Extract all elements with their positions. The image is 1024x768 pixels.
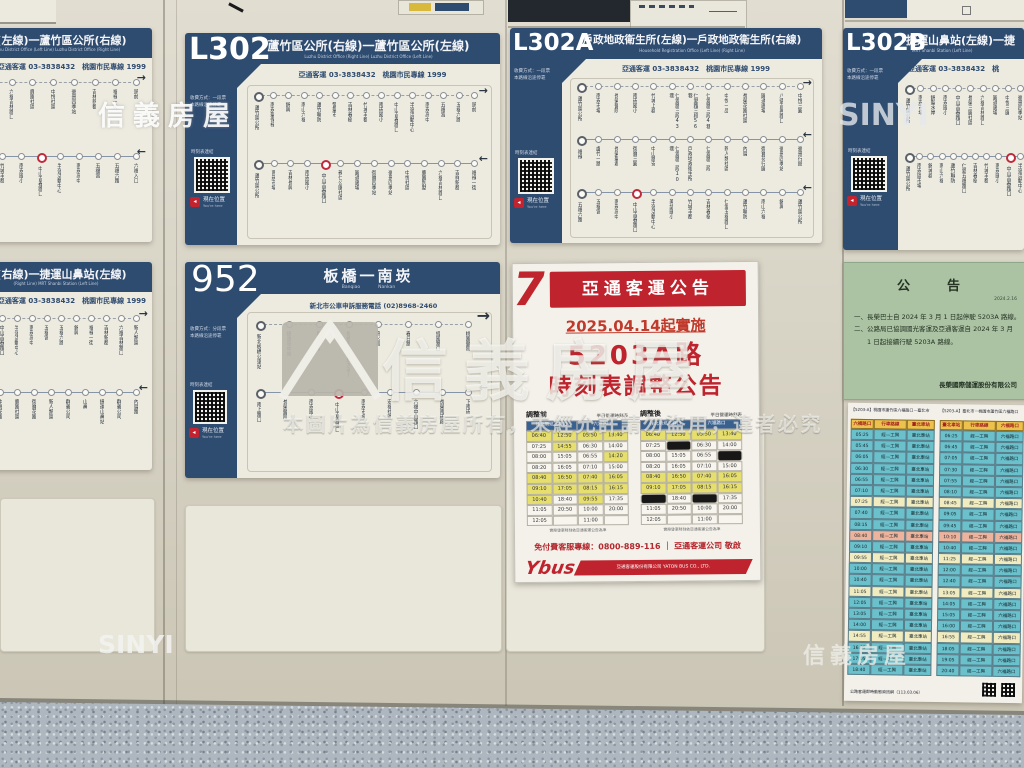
stop-dot bbox=[316, 321, 323, 328]
departure-time-cell: 06:45 bbox=[939, 441, 962, 453]
stop-dot bbox=[375, 321, 382, 328]
stop-label: 頭前 bbox=[132, 89, 138, 99]
bus-stop: 吉林新都 bbox=[92, 79, 99, 109]
destination-cell: 臺北車站 bbox=[906, 497, 934, 509]
stop-label: 五福六路 bbox=[113, 163, 119, 183]
sheet-table-outbound: 六福路口行車路線臺北車站05:25經—工興臺北車站05:45經—工興臺北車站06… bbox=[847, 419, 935, 676]
stop-label: 錦興 bbox=[72, 325, 78, 335]
timetable-subtitle: 平日營運時刻表 bbox=[710, 412, 742, 418]
timetable-caption: 調整後平日營運時刻表 bbox=[640, 408, 742, 419]
time-cell: 07:40 bbox=[691, 472, 717, 483]
sign-header-band: 戶政地政衛生所(左線)一戶政地政衛生所(右線) Household Regist… bbox=[562, 28, 822, 59]
stop-dot bbox=[332, 92, 339, 99]
destination-cell: 六福路口 bbox=[993, 655, 1021, 667]
bus-stop: 蘆竹區公所 bbox=[905, 153, 915, 191]
stop-dot bbox=[454, 160, 461, 167]
bus-stop: 南崁高中 bbox=[614, 189, 621, 219]
departure-time-cell: 13:05 bbox=[937, 587, 960, 599]
bus-stop: 中山吉春路口 bbox=[955, 85, 962, 125]
here-label: 現在位置You're here bbox=[203, 197, 225, 208]
panel-seam bbox=[163, 0, 165, 706]
route-row-1: 蘆竹區公所南崁市場長榮醫院南崁國小竹城上郡仁愛路三段43巷仁愛路三段56巷仁愛路… bbox=[580, 86, 800, 87]
route-title: 站(右線)一捷運山鼻站(左線) bbox=[0, 266, 152, 282]
stop-dot bbox=[308, 389, 315, 396]
stop-dot bbox=[14, 315, 21, 322]
bus-stop: 八德吉興路口 bbox=[779, 83, 786, 123]
route-title-en: Luzhu District Office (Right Line) Luzhu… bbox=[237, 54, 500, 59]
you-are-here-marker: ◂ 現在位置You're here bbox=[847, 196, 882, 207]
bus-stop: 五福宮 bbox=[95, 153, 102, 178]
bus-stop: 中悅社區 bbox=[50, 79, 57, 109]
stop-label: 御寶三圓 bbox=[631, 146, 637, 166]
departure-time-cell: 16:00 bbox=[937, 620, 960, 632]
stop-label: 圓通廣場 bbox=[353, 170, 359, 190]
bus-stop: 豪景四季站 bbox=[1017, 85, 1024, 120]
bus-stop: 鹿園社區 bbox=[29, 79, 36, 109]
time-cell: 05:50 bbox=[691, 429, 717, 440]
bus-stop: 南崁聖保祿 bbox=[270, 92, 277, 127]
bus-stop: 蘆竹區公所 bbox=[254, 160, 264, 198]
stop-dot bbox=[779, 136, 786, 143]
time-cell: 18:40 bbox=[666, 493, 692, 504]
bus-stop: 長榮花園社區 bbox=[742, 83, 749, 123]
time-cell: 10:00 bbox=[578, 504, 604, 515]
bus-stop: 南崁市場 bbox=[917, 85, 924, 115]
time-cell: 06:40 bbox=[526, 431, 552, 442]
stop-label: 長榮花園社區 bbox=[741, 93, 747, 123]
stop-dot bbox=[65, 389, 72, 396]
qr-code bbox=[193, 390, 227, 424]
time-cell bbox=[717, 514, 743, 525]
arrow-right-icon: → bbox=[137, 72, 146, 83]
route-line-remnant bbox=[709, 11, 737, 12]
stop-label: 五福六路 bbox=[57, 325, 63, 345]
departure-time-cell: 06:30 bbox=[850, 462, 873, 474]
departure-time-cell: 19:05 bbox=[936, 654, 959, 666]
qr-label: 時刻表連結 bbox=[848, 148, 871, 154]
qr-code bbox=[999, 681, 1017, 699]
route-sign-952: 板橋一南崁 Banqiao Nankan 952 收費方式：分段票 本路線沿途停… bbox=[185, 262, 500, 478]
here-en: You're here bbox=[202, 435, 224, 439]
time-cell: 07:10 bbox=[691, 461, 717, 472]
yaton-bus-notice-poster: 7 亞通客運公告 2025.04.14起實施 5203A路 時刻表調整公告 調整… bbox=[512, 261, 762, 583]
column-header: 行車路線 bbox=[963, 420, 996, 430]
destination-cell: 臺北車站 bbox=[906, 508, 934, 520]
current-stop-dot bbox=[632, 189, 642, 199]
stop-label: 御寶四季站 bbox=[370, 170, 376, 195]
arrow-right-icon: → bbox=[479, 85, 488, 96]
stop-label: 五福六路 bbox=[576, 202, 582, 222]
time-cell: 11:05 bbox=[527, 505, 553, 516]
route-cell: 經—工興 bbox=[871, 619, 904, 631]
arrow-right-icon: → bbox=[477, 308, 490, 324]
stop-dot bbox=[0, 389, 4, 396]
route-cell: 經—工興 bbox=[871, 653, 904, 665]
stop-label: 御寶花行圓 bbox=[759, 146, 765, 171]
bus-stop: 吉林春樹 bbox=[347, 92, 354, 122]
stop-label: 桃園醫院 bbox=[464, 331, 470, 351]
stop-label: 南崁國小 bbox=[17, 163, 23, 183]
stop-dot bbox=[425, 92, 432, 99]
tiny-text-remnant bbox=[639, 5, 694, 8]
stop-label: 仁愛五福路口 bbox=[960, 163, 966, 193]
cut-off-sign-top bbox=[398, 0, 484, 15]
stop-dot bbox=[632, 136, 639, 143]
stop-label: 八德吉興路口 bbox=[778, 93, 784, 123]
departure-time-cell: 10:00 bbox=[849, 563, 872, 575]
time-cell: 09:10 bbox=[527, 484, 553, 495]
bus-stop: 蘆竹聯防 bbox=[742, 189, 749, 219]
stop-label: 南崁高中 bbox=[424, 102, 430, 122]
destination-cell: 臺北車站 bbox=[905, 530, 933, 542]
stop-dot bbox=[57, 153, 64, 160]
departure-time-cell: 09:05 bbox=[938, 508, 961, 520]
stop-label: 五福宮 bbox=[43, 325, 49, 340]
stop-label: 吉林長興 bbox=[286, 170, 292, 190]
stop-dot bbox=[363, 92, 370, 99]
company-name: 亞通客運股份有限公司 YATON BUS CO., LTD. bbox=[577, 559, 749, 576]
stop-dot bbox=[31, 389, 38, 396]
route-cell: 經—工興 bbox=[960, 632, 993, 644]
stop-dot bbox=[337, 160, 344, 167]
sign-sidebar bbox=[510, 28, 562, 243]
stop-label: 蘆竹區公所 bbox=[904, 166, 910, 191]
column-header: 臺北車站 bbox=[940, 420, 963, 430]
bus-stop: 桃園醫院 bbox=[465, 321, 472, 351]
stop-dot bbox=[760, 189, 767, 196]
bus-stop: 豪景四季站 bbox=[779, 136, 786, 171]
time-cell: 10:40 bbox=[527, 494, 553, 505]
departure-time-cell: 07:55 bbox=[939, 475, 962, 487]
bus-stop: 中山吉春路口 bbox=[1006, 153, 1016, 196]
time-cell: 11:05 bbox=[641, 504, 667, 515]
column-header: 六福路口 bbox=[851, 419, 874, 429]
route-cell: 經—工興 bbox=[871, 586, 904, 598]
time-cell: 17:35 bbox=[717, 493, 743, 504]
bus-stop: 南崁高中 bbox=[29, 315, 36, 345]
route-cell: 經—工興 bbox=[873, 496, 906, 508]
stop-label: 新北板橋公車站 bbox=[255, 334, 261, 369]
bus-stop: 捷運府中站 bbox=[286, 321, 293, 356]
departure-time-cell: 09:10 bbox=[849, 541, 872, 553]
time-cell: 20:50 bbox=[666, 504, 692, 515]
bus-stop: 六福中山路口 bbox=[413, 389, 420, 429]
stop-dot bbox=[742, 189, 749, 196]
destination-cell: 六福路口 bbox=[994, 576, 1022, 588]
stop-dot bbox=[1017, 153, 1024, 160]
bus-stop: 御寶四季站 bbox=[371, 160, 378, 195]
stop-label: 御寶花園 bbox=[30, 399, 36, 419]
stop-dot bbox=[18, 153, 25, 160]
stop-label: 竹城丰都 bbox=[362, 102, 368, 122]
stop-label: 戶政地政衛生所 bbox=[686, 146, 692, 181]
time-cell: 16:05 bbox=[603, 472, 629, 483]
stop-label: 親仁公園社區 bbox=[336, 170, 342, 200]
stop-dot bbox=[304, 160, 311, 167]
stop-label: 中山吉春路口 bbox=[36, 166, 42, 196]
bus-stop: 南崁國小 bbox=[378, 92, 385, 122]
bus-stop: 中山吉春路口 bbox=[0, 315, 6, 355]
time-cell: 12:05 bbox=[527, 515, 553, 526]
time-cell: 08:00 bbox=[526, 452, 552, 463]
stop-label: 南崁市場 bbox=[594, 93, 600, 113]
stop-dot bbox=[1017, 85, 1024, 92]
time-cell: 08:20 bbox=[526, 463, 552, 474]
route-code: L302A bbox=[513, 32, 593, 55]
destination-cell: 六福路口 bbox=[993, 666, 1021, 678]
destination-cell: 臺北車站 bbox=[904, 653, 932, 665]
destination-cell: 六福路口 bbox=[994, 554, 1022, 566]
stop-dot bbox=[939, 153, 946, 160]
bus-stop: 南崁國小 bbox=[632, 83, 639, 113]
here-arrow-icon: ◂ bbox=[847, 196, 857, 206]
bus-stop: 吉林春樹 bbox=[705, 189, 712, 219]
stop-label: 圓通廣場 bbox=[759, 93, 765, 113]
company-banner: 亞通客運股份有限公司 YATON BUS CO., LTD. bbox=[574, 559, 753, 576]
qr-label: 時刻表連結 bbox=[190, 382, 213, 388]
destination-cell: 臺北車站 bbox=[904, 642, 932, 654]
departure-time-cell: 14:55 bbox=[848, 630, 871, 642]
current-stop-dot bbox=[1006, 153, 1016, 163]
departure-time-cell: 10:40 bbox=[849, 574, 872, 586]
redacted-cell bbox=[717, 450, 743, 461]
empty-sign-panel bbox=[185, 505, 502, 652]
stop-label: 中悅三圓 bbox=[796, 93, 802, 113]
stop-label: 中山吉春路口 bbox=[954, 95, 960, 125]
sheet-caption-left: 【5203-A】桃園市蘆竹區六福路口－臺北市 bbox=[851, 407, 935, 414]
bus-stop: 盧竹一路 bbox=[595, 136, 602, 166]
fare-line: 收費方式：一段票 bbox=[847, 68, 896, 75]
stop-label: 南崁高中 bbox=[613, 199, 619, 219]
stop-dot bbox=[0, 153, 6, 160]
bus-stop: 竹城丰都 bbox=[687, 189, 694, 219]
stop-dot bbox=[687, 83, 694, 90]
stop-label: 福祿 bbox=[576, 149, 582, 159]
bus-stop: 福祿一街 bbox=[112, 79, 119, 109]
departure-time-cell: 15:05 bbox=[937, 609, 960, 621]
departure-time-cell: 12:40 bbox=[938, 575, 961, 587]
dark-mark bbox=[228, 2, 244, 12]
bus-stop: 福祿一街 bbox=[88, 315, 95, 345]
bus-stop: 蘆竹聯防 bbox=[950, 153, 957, 183]
stop-label: 中悅社區 bbox=[49, 89, 55, 109]
bus-stop: 長榮醫院 bbox=[282, 389, 289, 419]
qr-code bbox=[518, 158, 554, 194]
stop-dot bbox=[271, 160, 278, 167]
stop-label: 五福六路 bbox=[455, 102, 461, 122]
departure-time-cell: 16:55 bbox=[937, 631, 960, 643]
stop-dot bbox=[669, 83, 676, 90]
bus-stop: 竹城丰都 bbox=[0, 153, 6, 183]
time-cell: 08:20 bbox=[640, 462, 666, 473]
route-cell: 經—工興 bbox=[872, 530, 905, 542]
stop-label: 六福中山路口 bbox=[412, 399, 418, 429]
here-arrow-icon: ◂ bbox=[514, 198, 524, 208]
route-cell: 經—工興 bbox=[960, 609, 993, 621]
route-cell: 經—工興 bbox=[961, 531, 994, 543]
redacted-cell bbox=[666, 440, 692, 451]
departure-time-cell: 20:40 bbox=[936, 665, 959, 677]
route-cell: 經—工興 bbox=[962, 464, 995, 476]
route-title: 蘆竹區公所(右線)一蘆竹區公所(左線) bbox=[237, 37, 500, 54]
destination-cell: 六福路口 bbox=[996, 453, 1024, 465]
sheet-footer: 公路客運即時動態資訊網（113.03.06） bbox=[850, 689, 922, 696]
departure-time-cell: 05:25 bbox=[851, 429, 874, 441]
stop-dot bbox=[301, 92, 308, 99]
stop-label: 新人類社區 bbox=[723, 146, 729, 171]
stop-label: 仁愛五福路口 bbox=[723, 199, 729, 229]
time-cell: 14:20 bbox=[603, 451, 629, 462]
bus-stop: 新人類區 bbox=[48, 389, 55, 419]
stop-dot bbox=[256, 321, 266, 331]
stop-dot bbox=[435, 321, 442, 328]
route-cell: 經—工興 bbox=[874, 429, 907, 441]
bus-stop: 六福吉林路口 bbox=[438, 160, 445, 200]
route-cell: 經—工興 bbox=[872, 519, 905, 531]
stop-dot bbox=[669, 189, 676, 196]
bus-stop: 下南崁 bbox=[465, 389, 472, 414]
stop-label: 蘆竹聯防 bbox=[949, 163, 955, 183]
route-cell: 經—工興 bbox=[873, 507, 906, 519]
stop-label: 豪景行館 bbox=[796, 146, 802, 166]
qr-label: 時刻表連結 bbox=[515, 150, 538, 156]
column-header: 往北勢坑工興口 bbox=[640, 420, 691, 430]
departure-time-cell: 14:05 bbox=[937, 598, 960, 610]
stop-label: 中悅社區 bbox=[403, 170, 409, 190]
bus-stop: 春日路 bbox=[405, 321, 412, 346]
stop-dot bbox=[282, 389, 289, 396]
stop-dot bbox=[614, 83, 621, 90]
route-row-return: 仁愛五福路口吉林春樹竹城丰都南崁國小中山吉春路口半嶺活動中心南崁高中五福宮五福六… bbox=[0, 156, 136, 157]
stop-label: 半嶺活動中心 bbox=[13, 325, 19, 355]
stop-label: 六福入口 bbox=[132, 163, 138, 183]
bus-stop: 御寶三圓 bbox=[632, 136, 639, 166]
stop-label: 蘆竹區公所 bbox=[253, 173, 259, 198]
bus-stop: 南崁市場 bbox=[271, 160, 278, 190]
stop-dot bbox=[286, 321, 293, 328]
stop-dot bbox=[0, 315, 6, 322]
stop-dot bbox=[270, 92, 277, 99]
column-header: 六福路口 bbox=[577, 420, 628, 430]
here-cn: 現在位置 bbox=[527, 198, 549, 204]
route-cell: 經—工興 bbox=[961, 565, 994, 577]
qr-code bbox=[194, 157, 230, 193]
timetable-footnote: 實際發車時刻依亞通客運公告為準 bbox=[527, 527, 629, 534]
stop-dot bbox=[285, 92, 292, 99]
arrow-right-icon: → bbox=[139, 308, 148, 319]
stop-label: 南崁聖保祿 bbox=[269, 102, 275, 127]
stop-dot bbox=[371, 160, 378, 167]
stop-dot bbox=[577, 83, 587, 93]
time-cell: 11:00 bbox=[578, 515, 604, 526]
destination-cell: 臺北車站 bbox=[907, 430, 935, 442]
stop-dot bbox=[687, 189, 694, 196]
route-code: 952 bbox=[191, 262, 260, 298]
destination-cell: 臺北車站 bbox=[906, 519, 934, 531]
bus-stop: 錦興 bbox=[73, 315, 80, 335]
route-cell: 經—工興 bbox=[960, 621, 993, 633]
bus-stop: 縣民廣場 bbox=[316, 321, 323, 351]
stop-dot bbox=[114, 153, 121, 160]
fare-line: 收費方式：一段票 bbox=[190, 95, 236, 102]
bus-stop: 仁愛路二段10巷 bbox=[669, 136, 680, 186]
time-cell: 07:10 bbox=[577, 462, 603, 473]
stop-label: 南崁區市場 bbox=[915, 163, 921, 188]
time-cell: 10:00 bbox=[692, 503, 718, 514]
destination-cell: 臺北車站 bbox=[904, 620, 932, 632]
stop-label: 長榮聖君 bbox=[613, 146, 619, 166]
stop-dot bbox=[650, 83, 657, 90]
stop-label: 高公局 bbox=[374, 331, 380, 346]
stop-dot bbox=[73, 315, 80, 322]
route-cell: 經—工興 bbox=[963, 430, 996, 442]
here-en: You're here bbox=[527, 205, 549, 209]
destination-cell: 臺北車站 bbox=[904, 609, 932, 621]
stop-label: 南山六福 bbox=[759, 199, 765, 219]
bus-stop: 半嶺活動中心 bbox=[409, 92, 416, 132]
destination-cell: 臺北車站 bbox=[904, 631, 932, 643]
stop-label: 吉林春樹 bbox=[346, 102, 352, 122]
bus-stop: 仁愛路三段4巷 bbox=[705, 83, 712, 129]
route-cell: 經—工興 bbox=[961, 542, 994, 554]
departure-time-cell: 08:40 bbox=[849, 529, 872, 541]
bus-stop: 南山六福 bbox=[939, 153, 946, 183]
time-cell: 12:05 bbox=[641, 514, 667, 525]
ybus-logo: Ybus bbox=[524, 558, 577, 579]
time-cell: 16:15 bbox=[717, 482, 743, 493]
destination-cell: 臺北車站 bbox=[904, 597, 932, 609]
route-cell: 經—工興 bbox=[873, 463, 906, 475]
timetable-after: 調整後平日營運時刻表往北勢坑工興口六福路口06:4012:5005:5013:4… bbox=[640, 408, 743, 533]
bus-stop: 半嶺活動中心 bbox=[1017, 153, 1024, 193]
bus-stop: 六福吉林路口 bbox=[118, 315, 125, 355]
you-are-here-marker: ◂ 現在位置You're here bbox=[189, 428, 224, 439]
stop-label: 宏福社區 bbox=[386, 399, 392, 419]
stop-label: 吉祥新都 bbox=[453, 170, 459, 190]
qr-code bbox=[851, 156, 887, 192]
stop-dot bbox=[779, 189, 786, 196]
route-cell: 經—工興 bbox=[872, 552, 905, 564]
stop-dot bbox=[465, 321, 472, 328]
stop-label: 頭前 bbox=[470, 102, 476, 112]
stop-label: 捷運山鼻站 bbox=[98, 399, 104, 424]
timetable-footnote: 實際發車時刻依亞通客運公告為準 bbox=[641, 526, 743, 533]
route-cell: 經—工興 bbox=[873, 440, 906, 452]
arrow-left-icon: ← bbox=[137, 146, 146, 157]
stop-dot bbox=[404, 160, 411, 167]
time-cell: 15:05 bbox=[666, 451, 692, 462]
stop-label: 中悅花園 bbox=[0, 399, 2, 419]
fare-line: 本路線沿途停靠 bbox=[190, 102, 236, 109]
destination-cell: 六福路口 bbox=[995, 476, 1023, 488]
stop-label: 中山吉春路口 bbox=[393, 102, 399, 132]
route-cell: 經—工興 bbox=[872, 541, 905, 553]
departure-time-cell: 11:25 bbox=[938, 553, 961, 565]
here-cn: 現在位置 bbox=[203, 197, 225, 203]
evergreen-notice: 公 告 2024.2.16 一、長榮巴士自 2024 年 3 月 1 日起停駛 … bbox=[843, 262, 1024, 400]
time-cell: 06:40 bbox=[640, 430, 666, 441]
bus-stop: 半嶺活動中心 bbox=[57, 153, 64, 193]
stop-label: 鹿園別墅 bbox=[420, 170, 426, 190]
stop-dot bbox=[687, 136, 694, 143]
timetable-before: 調整前平日營運時刻表往北勢坑工興口六福路口06:4012:5005:5013:4… bbox=[526, 409, 629, 534]
column-header: 行車路線 bbox=[874, 419, 907, 429]
destination-cell: 六福路口 bbox=[993, 610, 1021, 622]
stop-label: 仁愛路三段4巷 bbox=[704, 93, 710, 129]
time-cell: 16:05 bbox=[552, 462, 578, 473]
stop-label: 豪景四季站 bbox=[70, 89, 76, 114]
stop-label: 六福吉林路口 bbox=[8, 89, 14, 119]
